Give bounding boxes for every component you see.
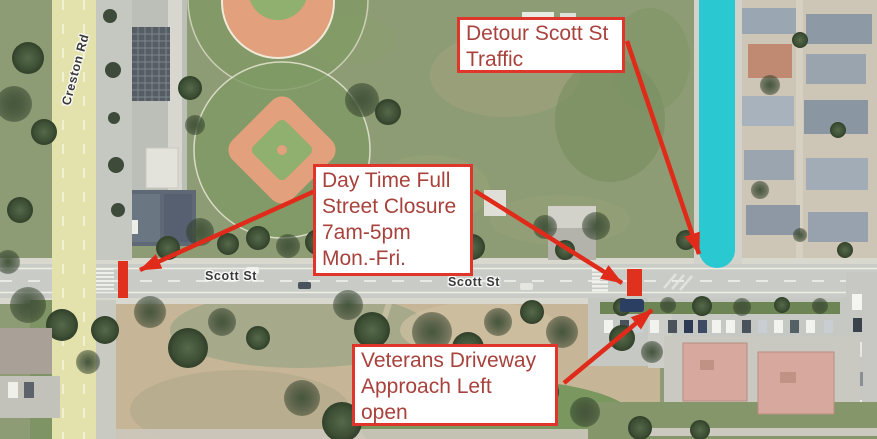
callout-detour-scott-st-traffic: Detour Scott St Traffic (457, 17, 625, 73)
street-label-scott-west: Scott St (205, 269, 257, 283)
closure-marker-east (627, 269, 642, 296)
street-label-scott-center: Scott St (448, 275, 500, 289)
annotated-satellite-map: Creston Rd Scott St Scott St Detour Scot… (0, 0, 877, 439)
detour-route-highlight (694, 0, 742, 268)
closure-marker-west (118, 261, 128, 298)
house-southwest (0, 328, 60, 418)
callout-daytime-full-street-closure: Day Time Full Street Closure 7am-5pm Mon… (313, 164, 473, 276)
callout-veterans-driveway-approach: Veterans Driveway Approach Left open (352, 344, 558, 426)
